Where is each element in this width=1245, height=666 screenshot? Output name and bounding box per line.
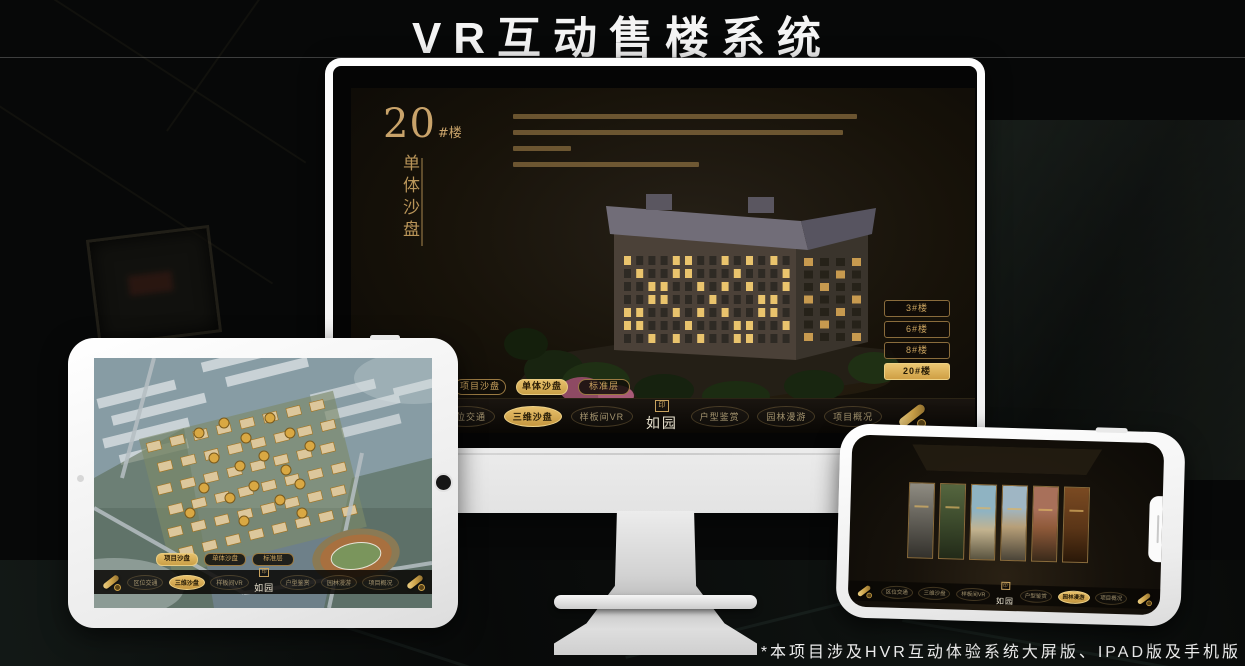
brand-logo-text: 如园 [646, 416, 678, 432]
building-marker[interactable] [209, 453, 219, 463]
scene-panel[interactable] [969, 484, 997, 561]
building-marker[interactable] [249, 481, 259, 491]
scene-panel[interactable] [938, 483, 966, 560]
subtab-project-sandbox[interactable]: 项目沙盘 [156, 553, 198, 566]
building-marker[interactable] [295, 479, 305, 489]
scene-panel[interactable] [1031, 486, 1059, 563]
nav-item-3d-sandbox[interactable]: 三维沙盘 [504, 406, 562, 427]
scene-panel[interactable] [907, 482, 935, 559]
ipad-power-button[interactable] [370, 335, 400, 340]
subtab-single-sandbox[interactable]: 单体沙盘 [516, 379, 568, 395]
sub-tab-bar: 项目沙盘 单体沙盘 标准层 [454, 379, 630, 395]
scene-panel[interactable] [1062, 486, 1090, 563]
ipad-nav-bar: 区位交通 三维沙盘 样板间VR 印 如园 户型鉴赏 园林漫游 项目概况 [94, 570, 432, 594]
building-number-suffix: #楼 [438, 126, 462, 141]
building-marker[interactable] [285, 428, 295, 438]
nav-item-garden-roam[interactable]: 园林漫游 [757, 406, 815, 427]
ipad-sub-tab-bar: 项目沙盘 单体沙盘 标准层 [156, 553, 294, 566]
building-marker[interactable] [235, 461, 245, 471]
text-line [513, 130, 843, 135]
building-marker[interactable] [241, 433, 251, 443]
building-marker[interactable] [185, 508, 195, 518]
monitor-stand-base [554, 595, 757, 609]
brand-logo-text: 如园 [996, 596, 1014, 605]
nav-item-showroom-vr[interactable]: 样板间VR [571, 406, 634, 427]
phone-screen: 区位交通 三维沙盘 样板间VR 印 如园 户型鉴赏 园林漫游 项目概况 [848, 435, 1165, 616]
speaker-icon [1157, 515, 1160, 543]
subtab-project-sandbox[interactable]: 项目沙盘 [454, 379, 506, 395]
seal-icon: 印 [259, 568, 269, 577]
headline-vertical-english [421, 158, 423, 246]
nav-item-unit-gallery[interactable]: 户型鉴赏 [280, 575, 316, 590]
building-marker[interactable] [259, 451, 269, 461]
poster-canvas: VR互动售楼系统 *本项目涉及HVR互动体验系统大屏版、IPAD版及手机版 20… [0, 0, 1245, 666]
nav-item-3d-sandbox[interactable]: 三维沙盘 [169, 575, 205, 590]
brand-logo: 印 如园 [646, 400, 678, 433]
brand-logo: 印 如园 [996, 581, 1015, 608]
nav-item-location-traffic[interactable]: 区位交通 [881, 585, 913, 599]
text-line [513, 114, 857, 119]
floor-button-3[interactable]: 3#楼 [884, 300, 950, 317]
seal-icon: 印 [655, 400, 669, 412]
phone-power-button[interactable] [1096, 427, 1128, 433]
building-marker[interactable] [225, 493, 235, 503]
scroll-menu-icon[interactable] [404, 572, 426, 592]
nav-item-project-overview[interactable]: 项目概况 [362, 575, 398, 590]
nav-item-3d-sandbox[interactable]: 三维沙盘 [918, 586, 950, 600]
nav-item-showroom-vr[interactable]: 样板间VR [956, 587, 990, 601]
building-marker[interactable] [305, 441, 315, 451]
monitor-stand-neck [554, 511, 757, 655]
nav-item-garden-roam[interactable]: 园林漫游 [321, 575, 357, 590]
ipad-screen: 项目沙盘 单体沙盘 标准层 区位交通 三维沙盘 样板间VR 印 如园 户型鉴赏 … [94, 358, 432, 608]
footnote: *本项目涉及HVR互动体验系统大屏版、IPAD版及手机版 [761, 638, 1241, 662]
nav-item-unit-gallery[interactable]: 户型鉴赏 [1020, 589, 1052, 603]
phone-nav-bar: 区位交通 三维沙盘 样板间VR 印 如园 户型鉴赏 园林漫游 项目概况 [848, 580, 1160, 609]
building-marker[interactable] [297, 508, 307, 518]
nav-item-showroom-vr[interactable]: 样板间VR [210, 575, 248, 590]
building-marker[interactable] [281, 465, 291, 475]
ipad-device: 项目沙盘 单体沙盘 标准层 区位交通 三维沙盘 样板间VR 印 如园 户型鉴赏 … [68, 338, 458, 628]
building-marker[interactable] [194, 428, 204, 438]
scroll-menu-icon[interactable] [100, 572, 122, 592]
nav-item-project-overview[interactable]: 项目概况 [1095, 591, 1127, 605]
building-marker[interactable] [265, 413, 275, 423]
building-marker[interactable] [219, 418, 229, 428]
scene-panel-gallery [907, 482, 1090, 563]
nav-item-unit-gallery[interactable]: 户型鉴赏 [691, 406, 749, 427]
ipad-camera-icon [77, 475, 84, 482]
brand-logo-text: 如园 [254, 584, 274, 594]
subtab-single-sandbox[interactable]: 单体沙盘 [204, 553, 246, 566]
floor-button-8[interactable]: 8#楼 [884, 342, 950, 359]
floor-button-6[interactable]: 6#楼 [884, 321, 950, 338]
nav-item-garden-roam[interactable]: 园林漫游 [1057, 590, 1089, 604]
building-number: 20 [383, 101, 436, 147]
interior-roof-silhouette [911, 444, 1102, 475]
building-marker[interactable] [239, 516, 249, 526]
scroll-menu-icon[interactable] [1135, 591, 1153, 607]
bg-photo-buildings [985, 120, 1245, 480]
headline-vertical-label: 单体沙盘 [397, 154, 422, 242]
building-marker[interactable] [199, 483, 209, 493]
scene-panel[interactable] [1000, 485, 1028, 562]
nav-item-location-traffic[interactable]: 区位交通 [127, 575, 163, 590]
seal-icon: 印 [1001, 581, 1010, 589]
phone-device: 区位交通 三维沙盘 样板间VR 印 如园 户型鉴赏 园林漫游 项目概况 [835, 423, 1185, 627]
floor-button-20[interactable]: 20#楼 [884, 363, 950, 380]
text-line [513, 146, 571, 151]
floor-button-group: 3#楼 6#楼 8#楼 20#楼 [884, 300, 950, 384]
scroll-menu-icon[interactable] [855, 583, 873, 599]
ipad-home-button[interactable] [434, 473, 453, 492]
building-marker[interactable] [275, 495, 285, 505]
subtab-standard-floor[interactable]: 标准层 [252, 553, 294, 566]
brand-logo: 印 如园 [254, 568, 274, 596]
building-headline: 20#楼 [383, 104, 462, 144]
subtab-standard-floor[interactable]: 标准层 [578, 379, 630, 395]
phone-notch [1148, 496, 1164, 562]
page-title: VR互动售楼系统 [0, 2, 1245, 66]
bg-framed-plaque [86, 225, 222, 347]
